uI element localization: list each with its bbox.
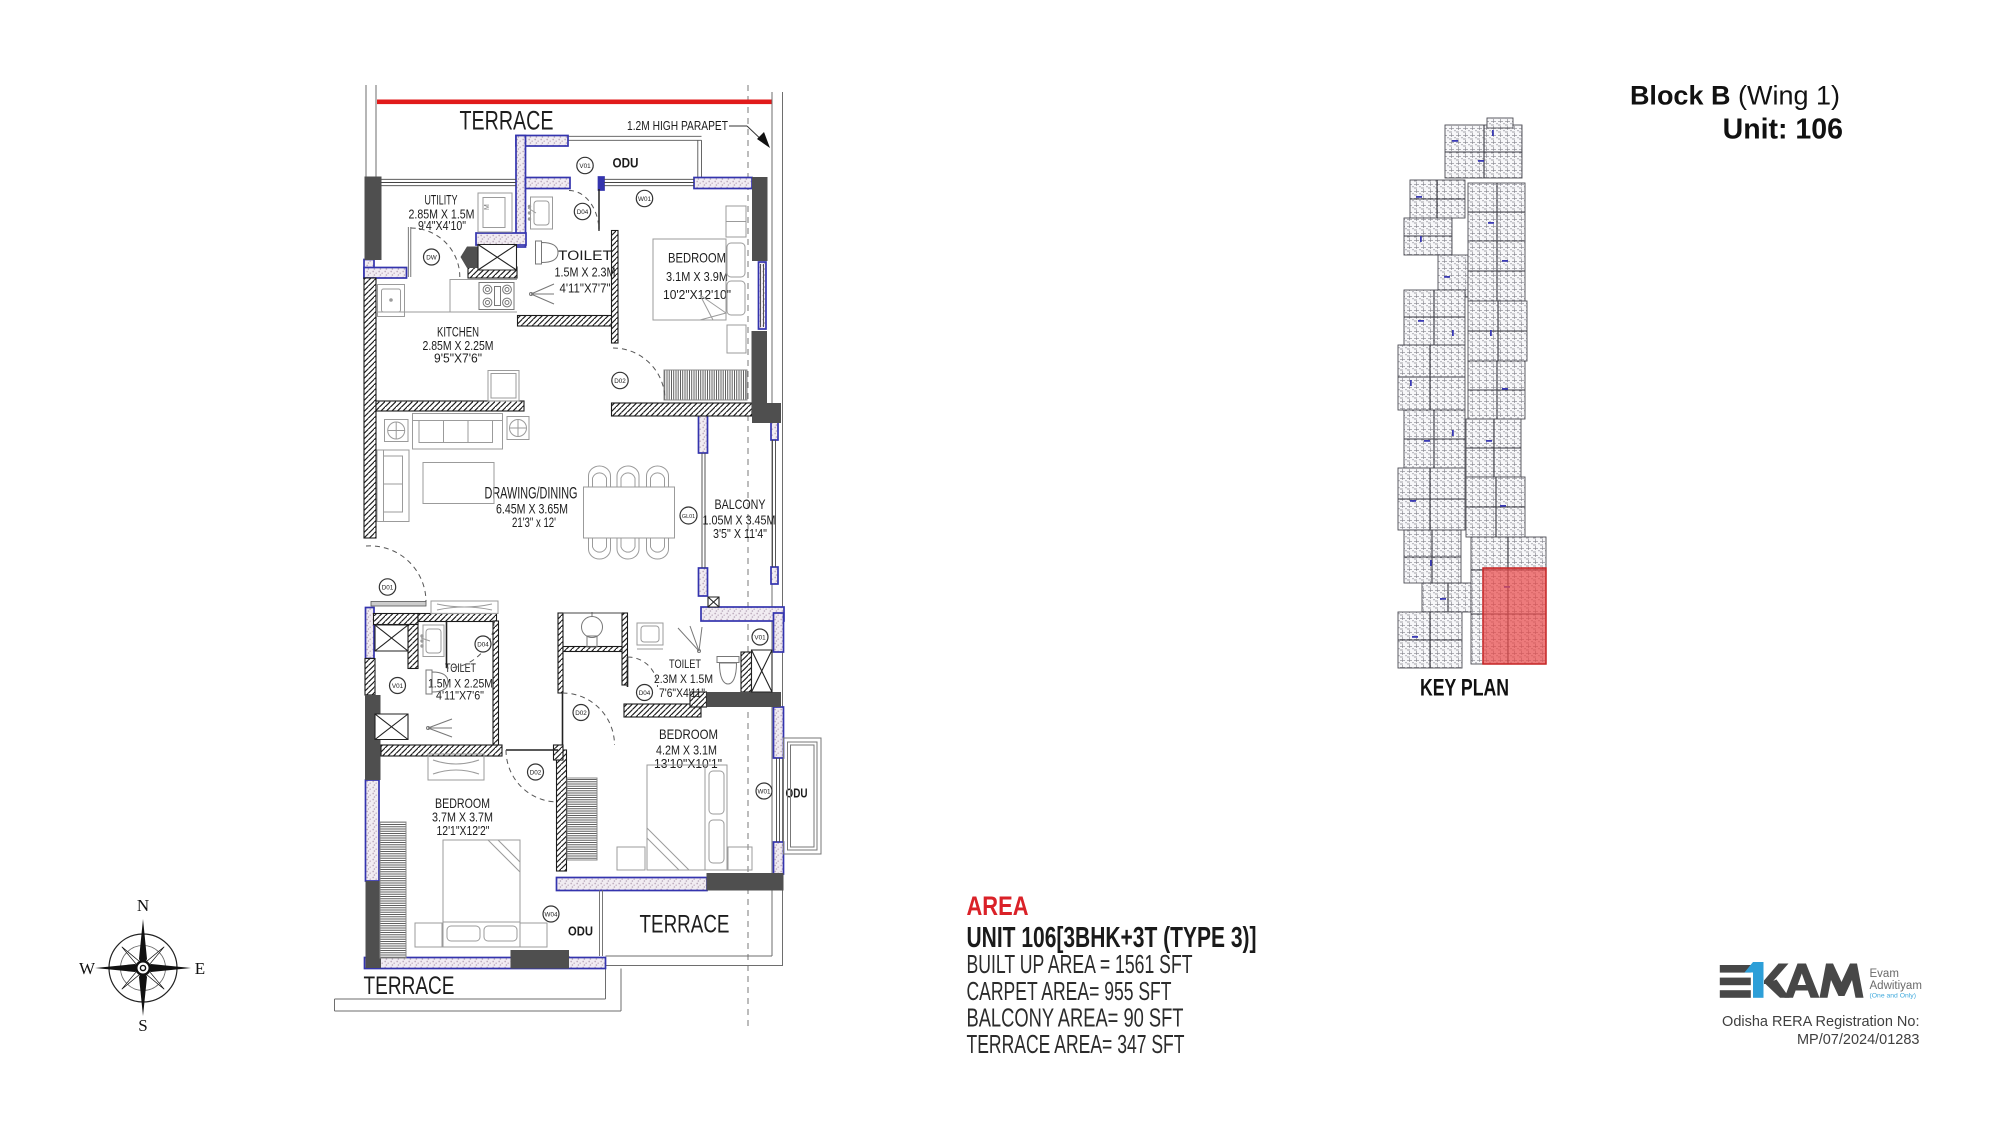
svg-text:4'11"X7'6": 4'11"X7'6" xyxy=(436,689,484,703)
svg-text:Evam: Evam xyxy=(1870,968,1899,980)
svg-text:TOILET: TOILET xyxy=(445,661,476,675)
svg-text:W01: W01 xyxy=(638,196,651,203)
svg-text:S: S xyxy=(138,1016,147,1035)
svg-text:BUILT UP AREA = 1561 SFT: BUILT UP AREA = 1561 SFT xyxy=(967,949,1193,979)
svg-text:ODU: ODU xyxy=(786,786,808,801)
svg-text:D04: D04 xyxy=(577,209,589,216)
svg-text:3.7M X 3.7M: 3.7M X 3.7M xyxy=(432,811,493,825)
svg-text:Odisha RERA Registration No:: Odisha RERA Registration No: xyxy=(1722,1014,1919,1030)
svg-text:D02: D02 xyxy=(614,378,626,385)
svg-text:ODU: ODU xyxy=(568,924,593,939)
svg-text:TOILET: TOILET xyxy=(558,248,612,263)
svg-text:9'5"X7'6": 9'5"X7'6" xyxy=(434,352,482,366)
svg-text:2.3M X 1.5M: 2.3M X 1.5M xyxy=(654,672,713,686)
svg-text:Unit: 106: Unit: 106 xyxy=(1723,114,1843,146)
svg-text:3'5" X 11'4": 3'5" X 11'4" xyxy=(713,527,767,541)
svg-text:CARPET AREA= 955 SFT: CARPET AREA= 955 SFT xyxy=(967,976,1172,1006)
svg-text:D01: D01 xyxy=(382,584,394,591)
svg-text:D02: D02 xyxy=(575,710,587,717)
svg-text:1.5M X 2.3M: 1.5M X 2.3M xyxy=(555,266,616,280)
svg-text:KITCHEN: KITCHEN xyxy=(437,325,479,340)
svg-text:1.05M X 3.45M: 1.05M X 3.45M xyxy=(703,514,776,528)
svg-text:BALCONY: BALCONY xyxy=(715,496,766,512)
svg-text:BEDROOM: BEDROOM xyxy=(659,726,718,742)
svg-text:21'3" x 12': 21'3" x 12' xyxy=(512,514,556,530)
svg-text:W01: W01 xyxy=(758,788,771,795)
svg-text:DW: DW xyxy=(426,254,437,261)
svg-text:Adwitiyam: Adwitiyam xyxy=(1870,980,1922,992)
svg-text:MP/07/2024/01283: MP/07/2024/01283 xyxy=(1797,1032,1920,1048)
svg-text:TERRACE AREA= 347 SFT: TERRACE AREA= 347 SFT xyxy=(967,1029,1185,1059)
svg-text:W: W xyxy=(79,959,96,978)
svg-text:M: M xyxy=(484,204,491,210)
svg-text:13'10"X10'1": 13'10"X10'1" xyxy=(654,757,722,771)
svg-text:D04: D04 xyxy=(477,641,489,648)
svg-text:TERRACE: TERRACE xyxy=(460,106,554,136)
svg-text:3.1M X 3.9M: 3.1M X 3.9M xyxy=(666,270,728,284)
svg-text:10'2"X12'10": 10'2"X12'10" xyxy=(663,288,731,302)
svg-text:UTILITY: UTILITY xyxy=(425,193,458,208)
svg-text:N: N xyxy=(137,896,149,915)
svg-text:BALCONY AREA= 90 SFT: BALCONY AREA= 90 SFT xyxy=(967,1003,1184,1033)
svg-text:BEDROOM: BEDROOM xyxy=(435,795,490,811)
svg-text:TOILET: TOILET xyxy=(669,657,702,671)
svg-text:AREA: AREA xyxy=(967,891,1029,921)
svg-text:V01: V01 xyxy=(392,683,404,690)
svg-text:TERRACE: TERRACE xyxy=(640,911,730,939)
svg-text:D04: D04 xyxy=(639,690,651,697)
svg-text:D02: D02 xyxy=(530,769,542,776)
svg-text:BEDROOM: BEDROOM xyxy=(668,250,726,266)
svg-text:ODU: ODU xyxy=(613,155,639,171)
svg-text:9'4"X4'10": 9'4"X4'10" xyxy=(418,219,466,233)
svg-text:KEY PLAN: KEY PLAN xyxy=(1420,675,1509,702)
svg-text:4'11"X7'7": 4'11"X7'7" xyxy=(560,282,611,296)
svg-text:7'6"X4'11": 7'6"X4'11" xyxy=(659,686,705,700)
svg-text:V01: V01 xyxy=(754,634,766,641)
svg-text:W04: W04 xyxy=(545,911,558,918)
svg-text:TERRACE: TERRACE xyxy=(364,972,455,1000)
svg-text:GL01: GL01 xyxy=(682,514,695,520)
svg-text:V01: V01 xyxy=(579,163,591,170)
svg-text:4.2M X 3.1M: 4.2M X 3.1M xyxy=(656,744,717,758)
svg-text:12'1"X12'2": 12'1"X12'2" xyxy=(437,824,490,838)
svg-text:1.2M HIGH PARAPET: 1.2M HIGH PARAPET xyxy=(627,119,728,133)
svg-text:Block B (Wing 1): Block B (Wing 1) xyxy=(1630,81,1840,111)
svg-text:E: E xyxy=(195,959,205,978)
svg-text:(One and Only): (One and Only) xyxy=(1870,993,1916,1000)
